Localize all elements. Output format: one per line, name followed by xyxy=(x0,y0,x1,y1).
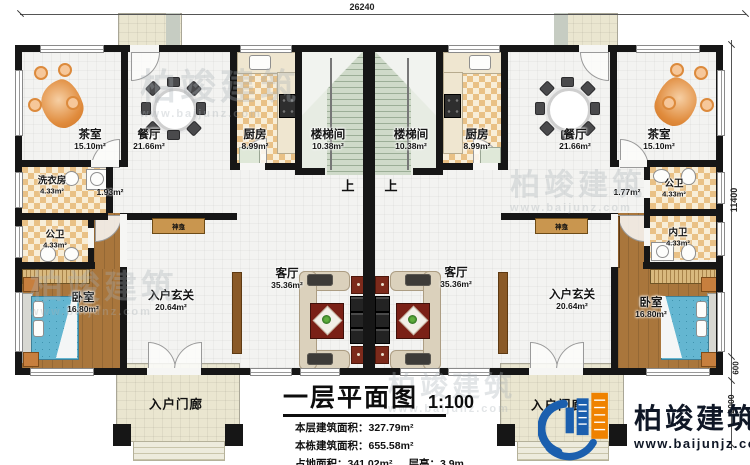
door-gap xyxy=(644,228,650,246)
door-gap xyxy=(611,214,618,267)
door-gap xyxy=(619,160,647,167)
kitchen-sink xyxy=(249,55,271,70)
wall-kitchen-left-r xyxy=(295,52,302,163)
area-label-corridor-right: 1.77m² xyxy=(614,187,641,197)
tea-seat xyxy=(34,66,48,80)
window xyxy=(250,368,292,376)
sofa-cushion xyxy=(405,274,431,286)
dining-chair xyxy=(141,102,151,115)
front-door-gap-left xyxy=(147,368,201,375)
room-label-living-left: 客厅35.36m² xyxy=(271,268,303,290)
title-underline xyxy=(283,414,446,417)
plant xyxy=(322,315,331,324)
stat-floor-area: 本层建筑面积：327.79m² xyxy=(295,420,474,435)
tea-seat xyxy=(28,98,42,112)
dining-chair xyxy=(535,102,545,115)
room-label-bath-priv-right: 内卫4.33m² xyxy=(666,228,690,247)
shrine-cabinet-right: 神龛 xyxy=(535,218,588,234)
dimension-top-width: 26240 xyxy=(349,2,374,12)
tea-seat xyxy=(58,63,72,77)
stair-rail xyxy=(407,58,409,170)
window xyxy=(400,368,440,376)
window xyxy=(717,292,725,352)
room-label-kitchen-left: 厨房8.99m² xyxy=(242,129,269,151)
door-gap xyxy=(120,214,127,267)
room-label-living-right: 客厅35.36m² xyxy=(440,267,472,289)
window xyxy=(30,368,94,376)
dimension-right-main: 11400 xyxy=(729,188,739,213)
window xyxy=(448,45,500,53)
tea-seat xyxy=(662,96,676,110)
window xyxy=(240,45,292,53)
media-unit xyxy=(375,312,390,328)
title-row: 一层平面图 1:100 xyxy=(283,386,474,411)
window xyxy=(15,172,23,208)
wall-kitchen-left-l xyxy=(230,52,237,163)
room-label-kitchen-right: 厨房8.99m² xyxy=(464,129,491,151)
wall-bottom xyxy=(15,368,723,375)
tv-cabinet xyxy=(375,276,389,294)
dining-chair xyxy=(561,77,574,87)
plan-title: 一层平面图 xyxy=(283,386,418,411)
plan-scale: 1:100 xyxy=(428,393,474,411)
tv-cabinet xyxy=(375,346,389,364)
porch-pillar xyxy=(113,424,131,446)
brand-text: 柏竣建筑 www.baijunjz.com xyxy=(634,405,750,451)
window xyxy=(717,172,725,204)
sofa-cushion xyxy=(307,274,333,286)
tea-seat xyxy=(700,98,714,112)
door-gap xyxy=(473,163,498,170)
porch-label-left: 入户门廊 xyxy=(149,394,203,413)
tea-seat xyxy=(66,96,80,110)
media-unit xyxy=(375,328,390,344)
tea-seat xyxy=(694,66,708,80)
window xyxy=(717,70,725,136)
pillow xyxy=(696,301,707,318)
window xyxy=(636,45,700,53)
floor-plan-page: 神龛 神龛 xyxy=(0,0,750,465)
wall-bath-right-bottom xyxy=(643,262,723,269)
washer-drum xyxy=(90,172,104,186)
stair-rail xyxy=(330,58,332,170)
room-label-stair-right: 楼梯间10.38m² xyxy=(394,129,429,151)
room-label-bedroom-left: 卧室16.80m² xyxy=(67,292,99,314)
room-label-bath-pub-right: 公卫4.33m² xyxy=(662,179,686,198)
rear-door-gap-left xyxy=(130,45,159,52)
wall-kitchen-right-l xyxy=(436,52,443,163)
tea-seat xyxy=(670,63,684,77)
wall-top xyxy=(15,45,723,52)
window xyxy=(15,292,23,352)
brand-website: www.baijunjz.com xyxy=(634,436,750,451)
porch-pillar xyxy=(225,424,243,446)
nightstand xyxy=(701,277,717,292)
brand-building-icon xyxy=(538,389,630,465)
dimension-line-top xyxy=(20,14,746,15)
rear-door-gap-right xyxy=(579,45,608,52)
door-gap xyxy=(91,160,119,167)
window xyxy=(40,45,104,53)
plant xyxy=(408,315,417,324)
front-door-gap-right xyxy=(529,368,583,375)
shrine-label: 神龛 xyxy=(555,221,568,231)
window xyxy=(646,368,710,376)
door-gap xyxy=(240,163,265,170)
dining-chair xyxy=(167,130,180,140)
dining-chair xyxy=(590,102,600,115)
stairs-up-label-left: 上 xyxy=(341,176,354,195)
stove xyxy=(279,94,296,118)
room-label-tea-left: 茶室15.10m² xyxy=(74,129,106,151)
kitchen-sink xyxy=(469,55,491,70)
nightstand xyxy=(23,352,39,367)
title-block: 一层平面图 1:100 本层建筑面积：327.79m² 本栋建筑面积：655.5… xyxy=(283,386,474,465)
window xyxy=(300,368,340,376)
wall-tea-dining-right xyxy=(610,52,617,163)
room-label-bath-pub-left: 公卫4.33m² xyxy=(43,230,67,249)
dining-chair xyxy=(167,77,180,87)
stat-footprint: 占地面积：341.02m²层高：3.9m xyxy=(295,456,474,465)
room-label-bedroom-right: 卧室16.80m² xyxy=(635,297,667,319)
stairs-left-break xyxy=(302,52,363,116)
foyer-partition-left xyxy=(232,272,242,354)
window xyxy=(448,368,490,376)
room-label-foyer-right: 入户玄关20.64m² xyxy=(549,289,595,311)
wall-party-center xyxy=(363,52,375,368)
wall-bath-divider-right xyxy=(644,209,723,216)
dimension-line-right xyxy=(731,40,732,450)
stove xyxy=(444,94,461,118)
dimension-right-step: 600 xyxy=(732,361,741,374)
room-label-stair-left: 楼梯间10.38m² xyxy=(311,129,346,151)
room-label-dining-right: 餐厅21.66m² xyxy=(559,129,591,151)
window xyxy=(15,70,23,136)
stairs-right-break xyxy=(375,52,436,116)
porch-pillar xyxy=(497,424,515,446)
room-label-tea-right: 茶室15.10m² xyxy=(643,129,675,151)
wall-stair-right-bottom xyxy=(413,168,443,175)
room-label-laundry: 洗衣房4.33m² xyxy=(38,176,67,195)
wall-laundry-bath-left xyxy=(15,213,108,220)
rear-porch-left-step xyxy=(166,13,180,45)
stat-building-area: 本栋建筑面积：655.58m² xyxy=(295,438,474,453)
door-gap xyxy=(88,228,94,248)
wall-kitchen-right-r xyxy=(501,52,508,163)
media-unit xyxy=(375,296,390,312)
rear-porch-right-step xyxy=(554,13,568,45)
nightstand xyxy=(701,352,717,367)
room-label-dining-left: 餐厅21.66m² xyxy=(133,129,165,151)
sofa-cushion xyxy=(405,353,431,365)
brand-name: 柏竣建筑 xyxy=(634,405,750,433)
stairs-up-label-right: 上 xyxy=(384,176,397,195)
pillow xyxy=(33,320,44,337)
dining-chair xyxy=(196,102,206,115)
wall-stair-left-bottom xyxy=(295,168,325,175)
wall-tea-dining-left xyxy=(121,52,128,163)
pillow xyxy=(696,320,707,337)
shrine-label: 神龛 xyxy=(172,221,185,231)
pillow xyxy=(33,301,44,318)
foyer-partition-right xyxy=(498,272,508,354)
room-label-foyer-left: 入户玄关20.64m² xyxy=(148,290,194,312)
window xyxy=(15,226,23,258)
window xyxy=(717,222,725,256)
nightstand xyxy=(23,277,39,292)
sofa-cushion xyxy=(307,353,333,365)
brand-logo: 柏竣建筑 www.baijunjz.com xyxy=(538,390,750,465)
entry-porch-left-steps xyxy=(133,441,225,461)
wall-bath-left-bottom xyxy=(15,262,95,269)
area-label-corridor-left: 1.93m² xyxy=(97,187,124,197)
shrine-cabinet-left: 神龛 xyxy=(152,218,205,234)
door-gap xyxy=(644,180,650,198)
